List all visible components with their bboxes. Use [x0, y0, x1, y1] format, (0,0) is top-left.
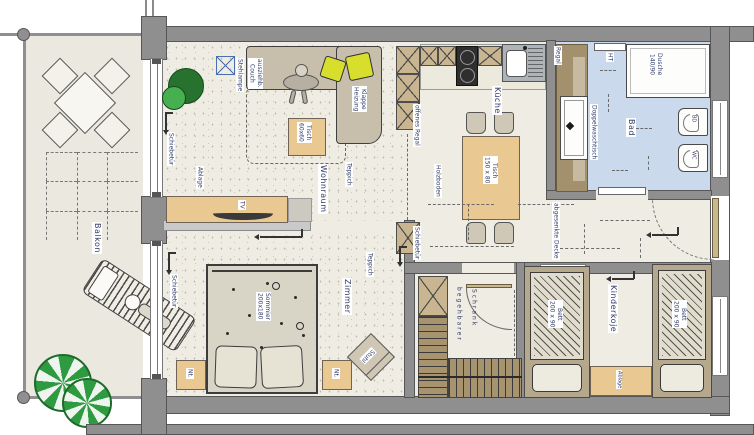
dining-chair — [466, 222, 486, 244]
towel-heater-icon — [594, 43, 626, 51]
label-begehbarer: begehbarer — [455, 286, 463, 343]
bath-door-arrow-line — [652, 234, 678, 236]
plant-leaf-icon — [162, 86, 186, 110]
label-schrank: Schrank — [470, 288, 478, 328]
room-label-kinderkoje: Kinderkoje — [608, 284, 618, 333]
tile-joint — [600, 70, 616, 71]
cooktop-icon — [456, 46, 478, 86]
label-tv: TV — [238, 200, 246, 210]
label-schiebetuer-zimmer: Schiebetür — [170, 274, 178, 308]
label-schiebetuer-wohnraum: Schiebetür — [167, 132, 175, 166]
wall-top — [150, 26, 754, 42]
label-tisch-150: Tisch150 x 80 — [483, 156, 498, 184]
stairs-walk-line — [418, 376, 522, 378]
bath-door-arrowhead — [646, 232, 651, 238]
label-abgesenkte-decke: abgesenkte Decke — [552, 202, 560, 260]
ceiling-grid-line — [428, 204, 494, 205]
sliding-door-arrow-tick — [301, 229, 303, 237]
room-label-wohnraum: Wohnraum — [318, 164, 328, 214]
bath-door-arrow-tick — [677, 227, 679, 235]
open-shelf-cabinet — [396, 74, 420, 102]
label-ablage-wohnraum: Ablage — [196, 166, 204, 189]
bed-texture-ring — [272, 282, 280, 290]
wall-outer-band — [86, 424, 754, 435]
room-label-zimmer: Zimmer — [342, 278, 352, 315]
room-label-balkon: Balkon — [92, 222, 102, 254]
window-kinderkoje — [712, 296, 728, 376]
bed-pillow — [260, 345, 304, 389]
ceiling-grid-line — [600, 220, 650, 221]
dining-chair — [494, 222, 514, 244]
railing-post-bottom — [17, 391, 30, 404]
label-wc: WC — [690, 150, 696, 160]
label-teppich-wohnraum: Teppich — [345, 162, 353, 187]
label-klappe-heizung: KlappeHeizung — [352, 86, 367, 112]
dining-chair — [494, 112, 514, 134]
label-schiebetuer-kueche: Schiebetür — [413, 226, 421, 260]
wall-pillar-left-top — [141, 16, 167, 60]
kinderkoje-arrowhead — [606, 276, 611, 282]
berth-pillow-left — [532, 364, 582, 392]
stairs-flight-vertical — [418, 316, 448, 398]
sliding-glass-door-bedroom — [150, 240, 163, 380]
window-bathroom — [712, 100, 728, 178]
label-bd: BD — [690, 114, 696, 123]
balcony-railing-left — [23, 33, 26, 399]
label-regal-bad: Regal — [554, 46, 562, 65]
railing-post-top — [17, 28, 30, 41]
sliding-door-arrow-line — [260, 236, 302, 238]
shower-tray — [626, 44, 710, 98]
tree-icon — [62, 378, 112, 428]
schiebetuer-arrowhead — [397, 262, 403, 267]
bath-door-leaf — [598, 187, 646, 195]
schiebetuer-arrow-line — [165, 112, 167, 130]
upper-cabinet — [438, 46, 456, 66]
floor-plan: Balkon Wohnraum Küche Bad Zimmer Kinderk… — [0, 0, 754, 435]
label-holzboden: Holzboden — [434, 164, 442, 198]
sideboard-extension — [288, 198, 312, 222]
label-couch: ausziehb.Couch — [248, 58, 263, 89]
label-bett-links: Bett200 x 90 — [548, 300, 563, 328]
berth-pillow-right — [660, 364, 704, 392]
tile-joint — [648, 156, 649, 170]
label-dusche: Dusche140/90 — [648, 52, 663, 76]
label-ablage-kinderkoje: Ablage — [616, 370, 622, 389]
upper-cabinet — [420, 46, 438, 66]
label-doppelwaschtisch: Doppelwaschtisch — [590, 104, 598, 160]
open-passage-line — [407, 134, 408, 220]
schiebetuer-arrow-line — [399, 246, 401, 262]
closet-door-opening — [462, 263, 514, 273]
kinderkoje-arrow-line — [612, 278, 634, 280]
tile-joint — [636, 128, 652, 129]
kinderkoje-arrow-tick — [633, 271, 635, 279]
label-sommier: Sommier200x180 — [256, 292, 271, 321]
ceiling-grid-line — [640, 238, 641, 258]
tile-joint — [612, 170, 628, 171]
wall-pillar-left-bottom — [141, 378, 167, 435]
label-tisch-60: Tisch60x60 — [297, 122, 312, 143]
upper-cabinet — [478, 46, 502, 66]
room-label-bad: Bad — [626, 118, 636, 137]
label-offenes-regal: offenes Regal — [413, 104, 421, 147]
dining-chair — [466, 112, 486, 134]
ceiling-grid-line — [584, 224, 585, 254]
sliding-door-arrowhead — [254, 234, 259, 240]
ceiling-grid-line — [468, 204, 469, 240]
closet-door-line — [514, 290, 515, 356]
room-label-kueche: Küche — [492, 86, 502, 115]
wall-bottom — [150, 396, 730, 414]
label-stehlampe: Stehlampe — [236, 58, 244, 92]
bed-texture-dots — [232, 288, 235, 291]
floor-lamp-icon — [216, 56, 235, 75]
label-nachttisch: Nt. — [186, 368, 194, 379]
label-bett-rechts: Bett200 x 90 — [672, 300, 687, 328]
tile-joint — [608, 94, 609, 112]
kitchen-sink-icon — [502, 44, 546, 82]
schiebetuer-arrow-line — [168, 252, 170, 270]
yellow-pillow — [345, 52, 375, 82]
label-ht: HT — [606, 52, 614, 62]
ceiling-grid-line — [518, 204, 574, 205]
ceiling-grid-line — [430, 246, 514, 247]
ceiling-grid-line — [560, 248, 620, 249]
stairs-flight-horizontal — [448, 358, 522, 398]
person-head — [295, 64, 308, 77]
closet-cabinet — [418, 276, 448, 316]
label-nachttisch: Nt. — [332, 368, 340, 379]
label-teppich-zimmer: Teppich — [366, 252, 374, 277]
bed-texture-ring — [296, 322, 304, 330]
bed-pillow — [214, 345, 257, 388]
open-shelf-cabinet — [396, 46, 420, 74]
double-washbasin — [560, 96, 588, 160]
sliding-glass-door-living — [150, 58, 163, 198]
